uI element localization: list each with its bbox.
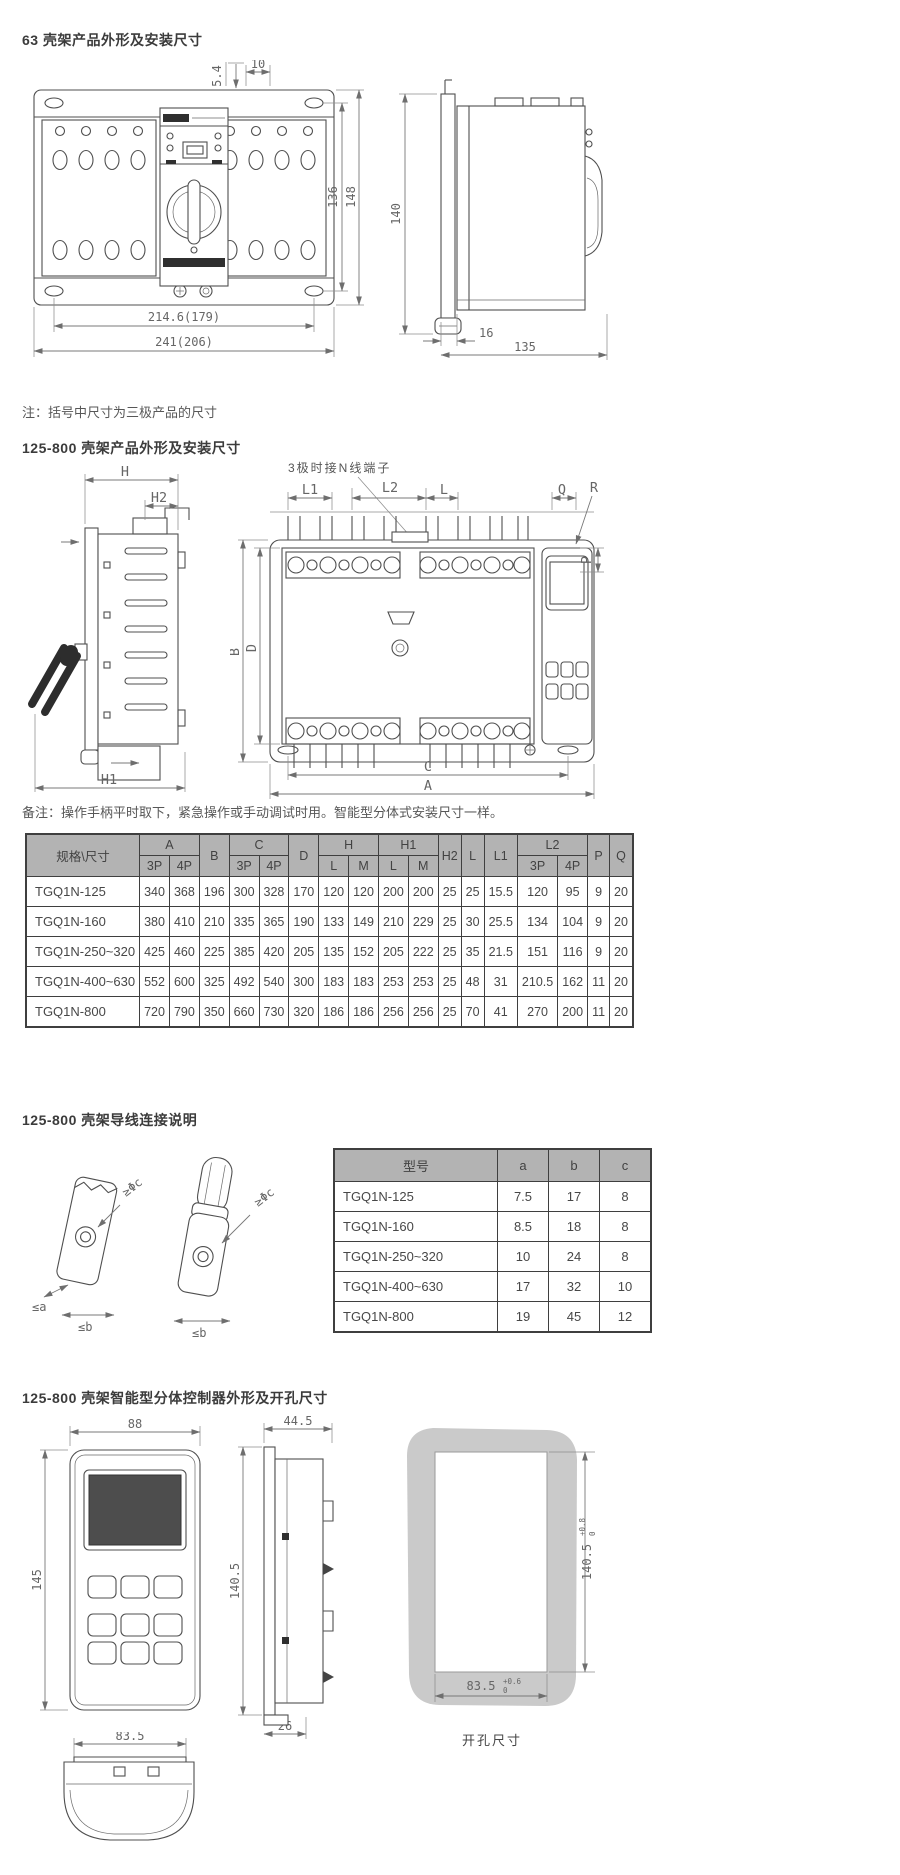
value-cell: 104 bbox=[558, 907, 588, 937]
value-cell: 20 bbox=[610, 967, 633, 997]
value-cell: 25 bbox=[438, 907, 461, 937]
value-cell: 25 bbox=[438, 877, 461, 907]
value-cell: 420 bbox=[259, 937, 289, 967]
section1-note: 注：括号中尺寸为三极产品的尺寸 bbox=[22, 402, 217, 421]
panel-cutout-drawing: 140.5 +0.8 0 83.5 +0.6 0 bbox=[395, 1422, 610, 1722]
dim-H2: H2 bbox=[151, 490, 167, 506]
model-cell: TGQ1N-250~320 bbox=[334, 1242, 498, 1272]
dim-R: R bbox=[590, 480, 599, 496]
value-cell: 205 bbox=[378, 937, 408, 967]
dim-phi-c-1: ≥Φc bbox=[119, 1175, 145, 1199]
lug-drawing-flat: ≥Φc ≤a ≤b bbox=[32, 1175, 145, 1334]
dimension-table-body: TGQ1N-1253403681963003281701201202002002… bbox=[26, 877, 633, 1028]
value-cell: 270 bbox=[517, 997, 557, 1028]
controller-side-drawing: 44.5 140.5 26 bbox=[230, 1415, 365, 1750]
value-cell: 17 bbox=[498, 1272, 549, 1302]
bezel-cover-drawing: 83.5 bbox=[30, 1732, 220, 1867]
table-row: TGQ1N-1257.5178 bbox=[334, 1182, 651, 1212]
wire-col-b: b bbox=[549, 1149, 600, 1182]
dim-83-5: 83.5 bbox=[116, 1732, 145, 1743]
value-cell: 183 bbox=[349, 967, 379, 997]
dim-44-5: 44.5 bbox=[284, 1415, 313, 1428]
value-cell: 25.5 bbox=[484, 907, 517, 937]
value-cell: 256 bbox=[378, 997, 408, 1028]
dim-cutout-width: 83.5 bbox=[467, 1679, 496, 1693]
dim-241: 241(206) bbox=[155, 335, 213, 349]
wire-col-model: 型号 bbox=[334, 1149, 498, 1182]
dim-A: A bbox=[424, 778, 432, 794]
lug-drawing-cable: ≥Φc ≤b bbox=[174, 1155, 277, 1340]
value-cell: 9 bbox=[588, 907, 610, 937]
value-cell: 368 bbox=[169, 877, 199, 907]
col-C: C bbox=[229, 834, 289, 856]
value-cell: 151 bbox=[517, 937, 557, 967]
value-cell: 30 bbox=[461, 907, 484, 937]
value-cell: 300 bbox=[229, 877, 259, 907]
value-cell: 253 bbox=[378, 967, 408, 997]
clip-latch-lower bbox=[323, 1671, 334, 1683]
value-cell: 540 bbox=[259, 967, 289, 997]
value-cell: 135 bbox=[319, 937, 349, 967]
col-L2-3P: 3P bbox=[517, 856, 557, 877]
section1-title: 63 壳架产品外形及安装尺寸 bbox=[22, 30, 202, 50]
value-cell: 9 bbox=[588, 877, 610, 907]
dim-cutout-width-tol-upper: +0.6 bbox=[503, 1677, 522, 1686]
wire-col-a: a bbox=[498, 1149, 549, 1182]
value-cell: 35 bbox=[461, 937, 484, 967]
col-P: P bbox=[588, 834, 610, 877]
q1n-front-view-drawing: 3极时接N线端子 bbox=[230, 452, 605, 800]
model-cell: TGQ1N-160 bbox=[26, 907, 140, 937]
model-cell: TGQ1N-125 bbox=[334, 1182, 498, 1212]
rotary-module bbox=[160, 108, 228, 286]
q1n-side-view-drawing: H H2 H1 bbox=[25, 462, 230, 797]
value-cell: 133 bbox=[319, 907, 349, 937]
clip-latch-upper bbox=[323, 1563, 334, 1575]
value-cell: 120 bbox=[349, 877, 379, 907]
value-cell: 200 bbox=[408, 877, 438, 907]
col-C-4P: 4P bbox=[259, 856, 289, 877]
value-cell: 190 bbox=[289, 907, 319, 937]
col-L1: L1 bbox=[484, 834, 517, 877]
cutout-caption: 开孔尺寸 bbox=[462, 1730, 522, 1749]
dim-10: 10 bbox=[251, 60, 265, 71]
value-cell: 552 bbox=[140, 967, 170, 997]
value-cell: 225 bbox=[199, 937, 229, 967]
col-A-4P: 4P bbox=[169, 856, 199, 877]
value-cell: 790 bbox=[169, 997, 199, 1028]
cutout-hole bbox=[435, 1452, 547, 1672]
dim-cutout-width-tol-lower: 0 bbox=[503, 1686, 508, 1695]
value-cell: 19 bbox=[498, 1302, 549, 1333]
dim-phi-c-2: ≥Φc bbox=[251, 1185, 277, 1209]
value-cell: 186 bbox=[319, 997, 349, 1028]
col-H1-L: L bbox=[378, 856, 408, 877]
value-cell: 20 bbox=[610, 997, 633, 1028]
dim-cutout-height: 140.5 bbox=[580, 1544, 594, 1580]
dim-D: D bbox=[244, 644, 260, 652]
value-cell: 31 bbox=[484, 967, 517, 997]
dim-214-6: 214.6(179) bbox=[148, 310, 220, 324]
section2-remark: 备注：操作手柄平时取下，紧急操作或手动调试时用。智能型分体式安装尺寸一样。 bbox=[22, 802, 503, 821]
value-cell: 660 bbox=[229, 997, 259, 1028]
bezel-device bbox=[64, 1757, 194, 1840]
wire-size-table: 型号 a b c TGQ1N-1257.5178TGQ1N-1608.5188T… bbox=[333, 1148, 652, 1333]
value-cell: 120 bbox=[517, 877, 557, 907]
value-cell: 210 bbox=[378, 907, 408, 937]
corner-header: 规格\尺寸 bbox=[26, 834, 140, 877]
value-cell: 460 bbox=[169, 937, 199, 967]
value-cell: 328 bbox=[259, 877, 289, 907]
col-L: L bbox=[461, 834, 484, 877]
table-row: TGQ1N-400~630173210 bbox=[334, 1272, 651, 1302]
value-cell: 8 bbox=[600, 1182, 652, 1212]
value-cell: 350 bbox=[199, 997, 229, 1028]
value-cell: 120 bbox=[319, 877, 349, 907]
value-cell: 170 bbox=[289, 877, 319, 907]
rotary-handle bbox=[188, 180, 200, 244]
lcd-screen bbox=[89, 1475, 181, 1545]
value-cell: 116 bbox=[558, 937, 588, 967]
table-row: TGQ1N-8007207903506607303201861862562562… bbox=[26, 997, 633, 1028]
value-cell: 11 bbox=[588, 967, 610, 997]
value-cell: 48 bbox=[461, 967, 484, 997]
value-cell: 183 bbox=[319, 967, 349, 997]
q1n-front-device bbox=[270, 512, 594, 768]
value-cell: 10 bbox=[498, 1242, 549, 1272]
model-cell: TGQ1N-400~630 bbox=[26, 967, 140, 997]
brand-label-strip bbox=[163, 258, 225, 267]
value-cell: 196 bbox=[199, 877, 229, 907]
value-cell: 25 bbox=[461, 877, 484, 907]
dim-side-height: 140 bbox=[389, 203, 403, 225]
col-A: A bbox=[140, 834, 200, 856]
ats63-side-view-drawing: 140 16 135 bbox=[375, 60, 635, 362]
value-cell: 300 bbox=[289, 967, 319, 997]
dim-5-4: 5.4 bbox=[210, 65, 224, 87]
dim-a: ≤a bbox=[32, 1300, 46, 1314]
value-cell: 186 bbox=[349, 997, 379, 1028]
value-cell: 325 bbox=[199, 967, 229, 997]
wire-table-body: TGQ1N-1257.5178TGQ1N-1608.5188TGQ1N-250~… bbox=[334, 1182, 651, 1333]
q1n-side-device bbox=[32, 508, 189, 780]
col-L2: L2 bbox=[517, 834, 587, 856]
dim-L: L bbox=[440, 482, 448, 498]
value-cell: 492 bbox=[229, 967, 259, 997]
value-cell: 425 bbox=[140, 937, 170, 967]
value-cell: 32 bbox=[549, 1272, 600, 1302]
ats63-front-view-drawing: 5.4 10 136 148 214.6(179) 241(206) bbox=[20, 60, 370, 362]
wire-lug-drawings: ≥Φc ≤a ≤b ≥Φc ≤b bbox=[22, 1145, 292, 1350]
model-cell: TGQ1N-125 bbox=[26, 877, 140, 907]
dim-88: 88 bbox=[128, 1418, 142, 1431]
col-D: D bbox=[289, 834, 319, 877]
table-row: TGQ1N-1608.5188 bbox=[334, 1212, 651, 1242]
value-cell: 8 bbox=[600, 1242, 652, 1272]
controller-front-drawing: 88 145 bbox=[28, 1418, 223, 1723]
table-row: TGQ1N-400~630552600325492540300183183253… bbox=[26, 967, 633, 997]
table-row: TGQ1N-800194512 bbox=[334, 1302, 651, 1333]
value-cell: 25 bbox=[438, 997, 461, 1028]
table-row: TGQ1N-1603804102103353651901331492102292… bbox=[26, 907, 633, 937]
value-cell: 320 bbox=[289, 997, 319, 1028]
col-H2: H2 bbox=[438, 834, 461, 877]
model-cell: TGQ1N-400~630 bbox=[334, 1272, 498, 1302]
col-H: H bbox=[319, 834, 379, 856]
value-cell: 210 bbox=[199, 907, 229, 937]
dim-B: B bbox=[230, 648, 243, 656]
col-Q: Q bbox=[610, 834, 633, 877]
ats63-side-device bbox=[435, 80, 602, 334]
dim-145: 145 bbox=[30, 1569, 44, 1591]
value-cell: 70 bbox=[461, 997, 484, 1028]
section2-title: 125-800 壳架产品外形及安装尺寸 bbox=[22, 438, 241, 458]
value-cell: 20 bbox=[610, 907, 633, 937]
value-cell: 385 bbox=[229, 937, 259, 967]
value-cell: 17 bbox=[549, 1182, 600, 1212]
table-row: TGQ1N-1253403681963003281701201202002002… bbox=[26, 877, 633, 907]
wire-col-c: c bbox=[600, 1149, 652, 1182]
col-H1: H1 bbox=[378, 834, 438, 856]
n-terminal-cover bbox=[392, 532, 428, 542]
value-cell: 10 bbox=[600, 1272, 652, 1302]
dim-C: C bbox=[424, 759, 432, 775]
value-cell: 24 bbox=[549, 1242, 600, 1272]
value-cell: 600 bbox=[169, 967, 199, 997]
table-row: TGQ1N-250~320425460225385420205135152205… bbox=[26, 937, 633, 967]
bezel-dimensions: 83.5 bbox=[74, 1732, 186, 1758]
dim-b-2: ≤b bbox=[192, 1326, 206, 1340]
wire-table-header: 型号 a b c bbox=[334, 1149, 651, 1182]
value-cell: 25 bbox=[438, 937, 461, 967]
controller-side-device bbox=[264, 1447, 334, 1725]
model-cell: TGQ1N-800 bbox=[26, 997, 140, 1028]
dim-Q: Q bbox=[558, 482, 566, 498]
value-cell: 45 bbox=[549, 1302, 600, 1333]
model-cell: TGQ1N-160 bbox=[334, 1212, 498, 1242]
dim-135: 135 bbox=[514, 340, 536, 354]
value-cell: 335 bbox=[229, 907, 259, 937]
value-cell: 8.5 bbox=[498, 1212, 549, 1242]
dim-cutout-height-tol-lower: 0 bbox=[588, 1531, 597, 1536]
value-cell: 7.5 bbox=[498, 1182, 549, 1212]
dim-cutout-height-tol-upper: +0.8 bbox=[578, 1517, 587, 1536]
dim-P: P bbox=[579, 556, 595, 564]
section4-title: 125-800 壳架智能型分体控制器外形及开孔尺寸 bbox=[22, 1388, 328, 1408]
col-C-3P: 3P bbox=[229, 856, 259, 877]
value-cell: 41 bbox=[484, 997, 517, 1028]
value-cell: 9 bbox=[588, 937, 610, 967]
value-cell: 12 bbox=[600, 1302, 652, 1333]
value-cell: 20 bbox=[610, 877, 633, 907]
n-terminal-annotation: 3极时接N线端子 bbox=[288, 460, 391, 475]
dim-148: 148 bbox=[344, 186, 358, 208]
col-B: B bbox=[199, 834, 229, 877]
dim-16: 16 bbox=[479, 326, 493, 340]
dimension-table: 规格\尺寸 A B C D H H1 H2 L L1 L2 P Q 3P 4P … bbox=[25, 833, 634, 1028]
table-row: TGQ1N-250~32010248 bbox=[334, 1242, 651, 1272]
value-cell: 229 bbox=[408, 907, 438, 937]
value-cell: 152 bbox=[349, 937, 379, 967]
value-cell: 730 bbox=[259, 997, 289, 1028]
dim-L2: L2 bbox=[382, 480, 398, 496]
dim-136: 136 bbox=[326, 186, 340, 208]
value-cell: 134 bbox=[517, 907, 557, 937]
value-cell: 720 bbox=[140, 997, 170, 1028]
value-cell: 222 bbox=[408, 937, 438, 967]
value-cell: 200 bbox=[558, 997, 588, 1028]
value-cell: 149 bbox=[349, 907, 379, 937]
col-A-3P: 3P bbox=[140, 856, 170, 877]
document-page: 63 壳架产品外形及安装尺寸 bbox=[0, 0, 900, 1875]
value-cell: 21.5 bbox=[484, 937, 517, 967]
table-header-row-1: 规格\尺寸 A B C D H H1 H2 L L1 L2 P Q bbox=[26, 834, 633, 856]
ats63-front-device bbox=[34, 90, 334, 305]
value-cell: 205 bbox=[289, 937, 319, 967]
value-cell: 25 bbox=[438, 967, 461, 997]
value-cell: 8 bbox=[600, 1212, 652, 1242]
dim-H: H bbox=[121, 464, 129, 480]
mounted-controller bbox=[542, 548, 592, 744]
value-cell: 18 bbox=[549, 1212, 600, 1242]
dim-b-1: ≤b bbox=[78, 1320, 92, 1334]
model-cell: TGQ1N-250~320 bbox=[26, 937, 140, 967]
value-cell: 15.5 bbox=[484, 877, 517, 907]
detached-handle bbox=[32, 644, 87, 712]
dim-H1: H1 bbox=[101, 772, 117, 788]
value-cell: 380 bbox=[140, 907, 170, 937]
value-cell: 256 bbox=[408, 997, 438, 1028]
col-L2-4P: 4P bbox=[558, 856, 588, 877]
value-cell: 253 bbox=[408, 967, 438, 997]
dim-L1: L1 bbox=[302, 482, 318, 498]
dim-140-5: 140.5 bbox=[230, 1563, 242, 1599]
value-cell: 200 bbox=[378, 877, 408, 907]
model-cell: TGQ1N-800 bbox=[334, 1302, 498, 1333]
value-cell: 162 bbox=[558, 967, 588, 997]
value-cell: 95 bbox=[558, 877, 588, 907]
col-H1-M: M bbox=[408, 856, 438, 877]
section3-title: 125-800 壳架导线连接说明 bbox=[22, 1110, 197, 1130]
col-H-M: M bbox=[349, 856, 379, 877]
value-cell: 365 bbox=[259, 907, 289, 937]
value-cell: 340 bbox=[140, 877, 170, 907]
value-cell: 11 bbox=[588, 997, 610, 1028]
col-H-L: L bbox=[319, 856, 349, 877]
value-cell: 20 bbox=[610, 937, 633, 967]
controller-front-device bbox=[70, 1450, 200, 1710]
value-cell: 210.5 bbox=[517, 967, 557, 997]
value-cell: 410 bbox=[169, 907, 199, 937]
